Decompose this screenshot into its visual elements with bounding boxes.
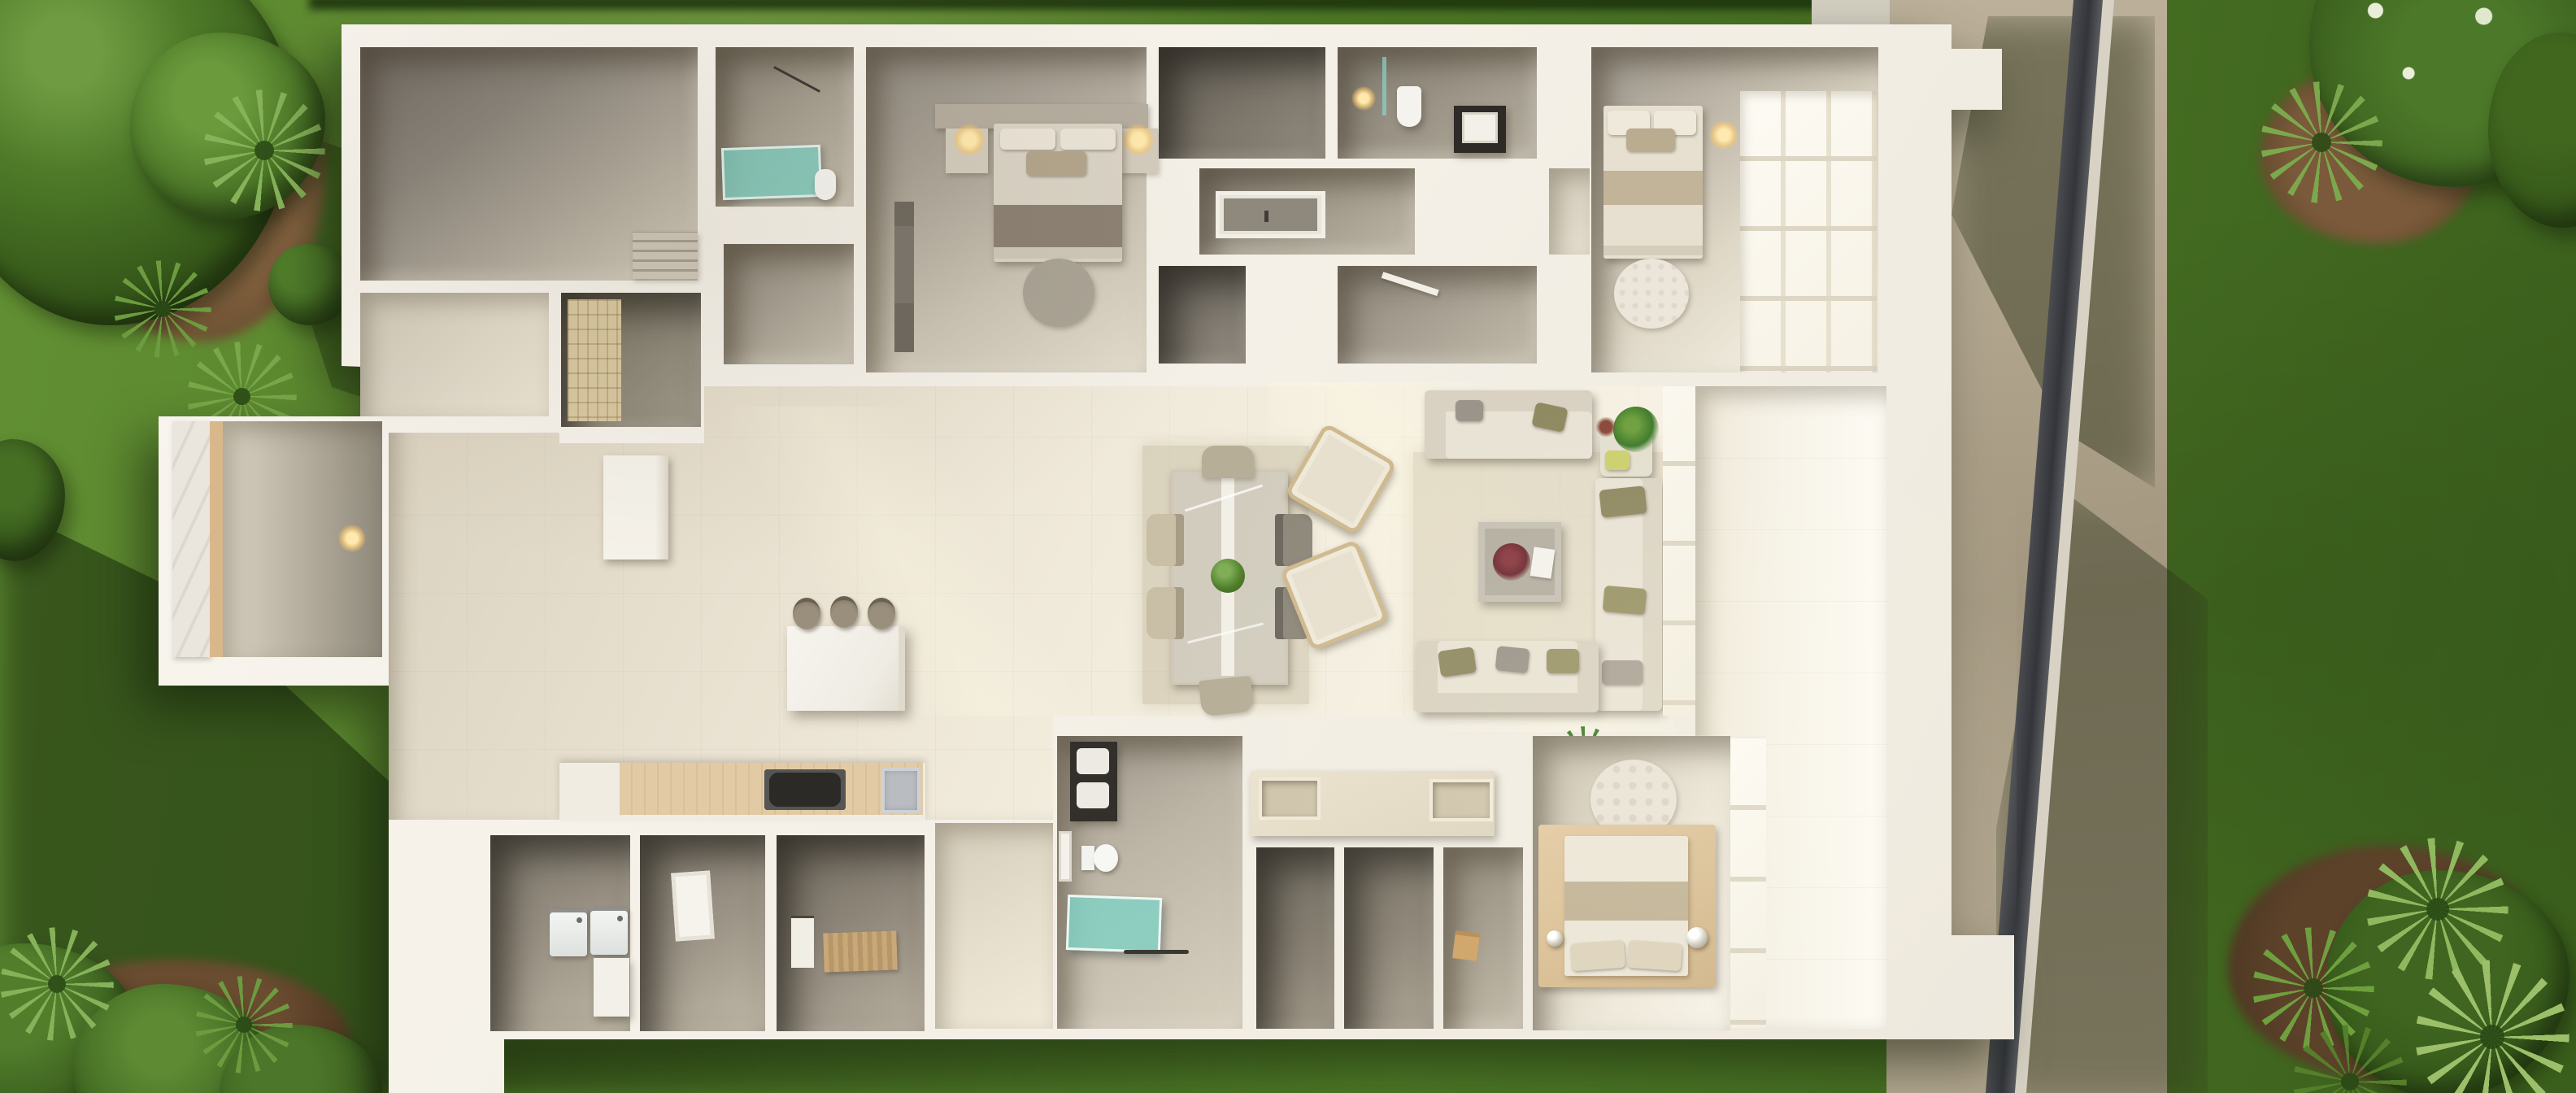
bed-platform (1538, 825, 1716, 987)
pillow (1627, 940, 1682, 972)
pillow-olive (1603, 586, 1647, 615)
glass-shower (721, 145, 822, 200)
sofa-top (1425, 390, 1592, 459)
kitchen-island (787, 626, 905, 711)
kitchen-counter-run (559, 763, 925, 820)
sink (881, 768, 920, 813)
window-wall (1740, 91, 1877, 372)
bed-base (1603, 246, 1703, 255)
dark-vanity (1070, 742, 1117, 821)
plant-burgundy (1493, 543, 1530, 581)
room-hall-west (360, 293, 549, 416)
marble-feature-wall (172, 421, 210, 657)
room-closet-d (1256, 847, 1334, 1029)
table-lamp (953, 124, 986, 156)
washer (550, 909, 587, 956)
pillow (1570, 940, 1625, 972)
wood-mat (823, 930, 898, 972)
pillow-gray (1602, 660, 1643, 685)
double-vanity-counter (1251, 771, 1495, 836)
towel-bar (1124, 950, 1189, 954)
bed-base (994, 247, 1122, 259)
window-wall (1663, 386, 1695, 716)
bar-stool (830, 596, 858, 628)
laundry-counter (594, 958, 629, 1017)
toilet-bowl (1094, 844, 1118, 872)
round-rug (1023, 259, 1094, 327)
floor-vent (791, 916, 814, 968)
table-lamp (1122, 124, 1155, 156)
dryer (590, 908, 628, 955)
glass-shower-bench (1066, 895, 1162, 953)
coffee-table (1478, 522, 1561, 602)
pendant-light (1351, 86, 1376, 111)
pillow-olive (1599, 486, 1647, 518)
vanity-counter (1216, 191, 1325, 238)
bed-double (994, 124, 1122, 262)
pillow-olive (1438, 647, 1477, 677)
round-rug (1614, 259, 1689, 329)
dining-chair (1147, 587, 1184, 639)
room-closet-a (1159, 47, 1325, 159)
bar-stool (868, 598, 895, 629)
pillow-olive (1547, 649, 1579, 673)
vanity-mirror (1454, 106, 1506, 153)
glass-partition (1382, 57, 1386, 115)
dining-chair (1202, 446, 1254, 478)
mirror (1224, 198, 1317, 231)
pillow-gray (1495, 646, 1530, 673)
candle-orb (1547, 930, 1563, 947)
bed-throw (1564, 882, 1688, 921)
mirror (1462, 112, 1498, 143)
toilet (1081, 844, 1117, 872)
dresser (894, 202, 914, 352)
potted-plant (1613, 407, 1659, 452)
window-wall (1730, 738, 1766, 1028)
toilet-tank (1081, 846, 1094, 870)
pillow (1000, 128, 1055, 150)
flower-stem (1595, 416, 1617, 438)
candle-orb (1686, 927, 1708, 948)
bed-throw (1603, 171, 1703, 205)
pillow-olive (1531, 402, 1568, 433)
sofa-bottom (1416, 641, 1599, 712)
staircase (633, 232, 698, 279)
pillow (1060, 128, 1116, 150)
wall-lamp (1709, 120, 1738, 150)
brick-wall (568, 299, 621, 421)
basin (1433, 782, 1490, 818)
sink (1077, 748, 1109, 774)
dining-chair (1147, 514, 1184, 566)
chaise-right (1595, 478, 1662, 711)
room-closet-c (1549, 168, 1590, 255)
lime-throw (1605, 451, 1630, 470)
aerial-floorplan-render (0, 0, 2576, 1093)
magazine (1530, 546, 1556, 578)
toilet (815, 169, 836, 200)
paper-bag (1452, 930, 1480, 960)
wall-frame (1059, 831, 1072, 882)
pendant-light (338, 525, 366, 552)
room-closet-b (1159, 266, 1246, 364)
room-dressing-north (724, 244, 854, 364)
bed-throw (994, 205, 1122, 247)
room-closet-e (1344, 847, 1434, 1029)
accent-pillow (1626, 128, 1675, 151)
cooktop (764, 769, 846, 810)
room-south-hall (935, 823, 1053, 1029)
bar-stool (793, 598, 820, 629)
wood-trim (210, 421, 223, 657)
dining-chair (1199, 676, 1254, 716)
accent-pillow (1026, 151, 1086, 176)
tall-cabinet (603, 455, 668, 560)
pillow-gray (1456, 400, 1483, 421)
wall-board (671, 870, 715, 941)
centerpiece-plant (1211, 559, 1245, 593)
faucet (1264, 211, 1268, 222)
room-hall-north (1338, 266, 1537, 364)
bed-double (1603, 106, 1703, 259)
toilet (1397, 86, 1421, 127)
dining-table (1171, 470, 1288, 685)
sink (1077, 782, 1109, 808)
basin (1262, 781, 1317, 816)
